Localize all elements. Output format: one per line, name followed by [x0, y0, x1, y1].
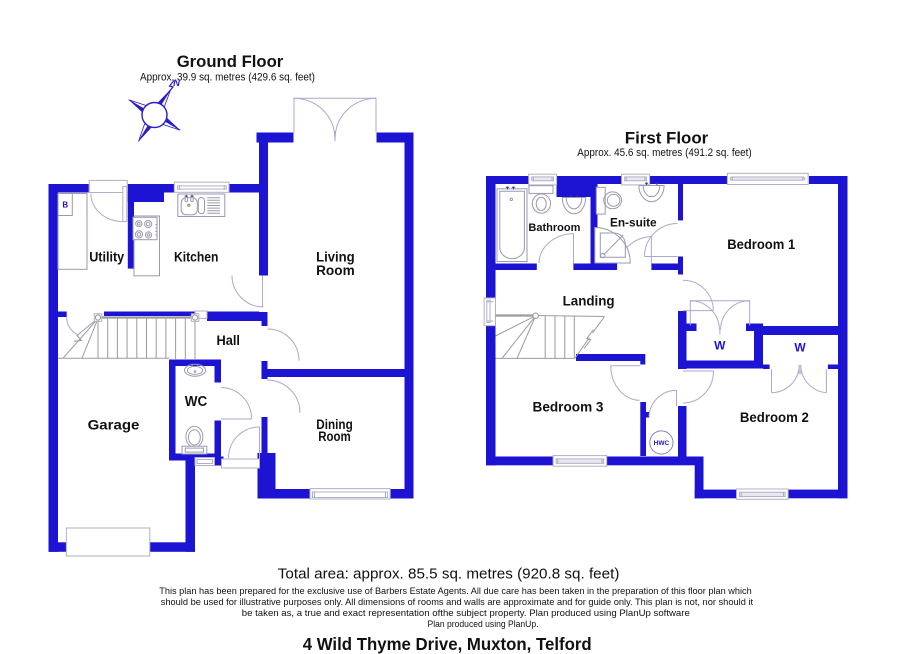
svg-text:Kitchen: Kitchen [174, 249, 219, 265]
svg-text:This plan has been prepared fo: This plan has been prepared for the excl… [159, 586, 751, 596]
svg-text:Utility: Utility [89, 249, 124, 265]
svg-text:Bedroom 3: Bedroom 3 [533, 399, 604, 414]
svg-text:Ground Floor: Ground Floor [177, 52, 284, 71]
svg-text:First Floor: First Floor [625, 129, 709, 148]
svg-text:Approx. 39.9 sq. metres (429.6: Approx. 39.9 sq. metres (429.6 sq. feet) [140, 72, 315, 84]
svg-text:N: N [173, 78, 181, 89]
svg-text:Hall: Hall [216, 333, 240, 348]
svg-text:En-suite: En-suite [610, 216, 657, 230]
svg-text:should be used for illustrativ: should be used for illustrative purposes… [161, 597, 754, 607]
svg-text:Bathroom: Bathroom [528, 222, 580, 234]
svg-text:W: W [794, 341, 806, 355]
svg-text:Bedroom 1: Bedroom 1 [727, 237, 795, 252]
svg-text:Room: Room [316, 263, 355, 278]
svg-text:Plan produced using PlanUp.: Plan produced using PlanUp. [428, 619, 539, 629]
svg-text:Room: Room [318, 429, 351, 444]
svg-text:B: B [62, 201, 68, 210]
svg-text:Approx. 45.6 sq. metres (491.2: Approx. 45.6 sq. metres (491.2 sq. feet) [577, 147, 751, 159]
svg-text:WC: WC [185, 394, 208, 410]
svg-text:Garage: Garage [88, 417, 140, 433]
svg-text:W: W [714, 339, 726, 353]
svg-text:Bedroom 2: Bedroom 2 [740, 410, 809, 425]
svg-text:Landing: Landing [563, 293, 615, 309]
svg-text:be taken as, a true and exact: be taken as, a true and exact representa… [242, 608, 690, 618]
svg-text:Total area: approx. 85.5 sq. m: Total area: approx. 85.5 sq. metres (920… [278, 566, 620, 583]
svg-text:4 Wild Thyme Drive, Muxton, Te: 4 Wild Thyme Drive, Muxton, Telford [303, 634, 592, 654]
svg-text:HWC: HWC [654, 440, 670, 447]
